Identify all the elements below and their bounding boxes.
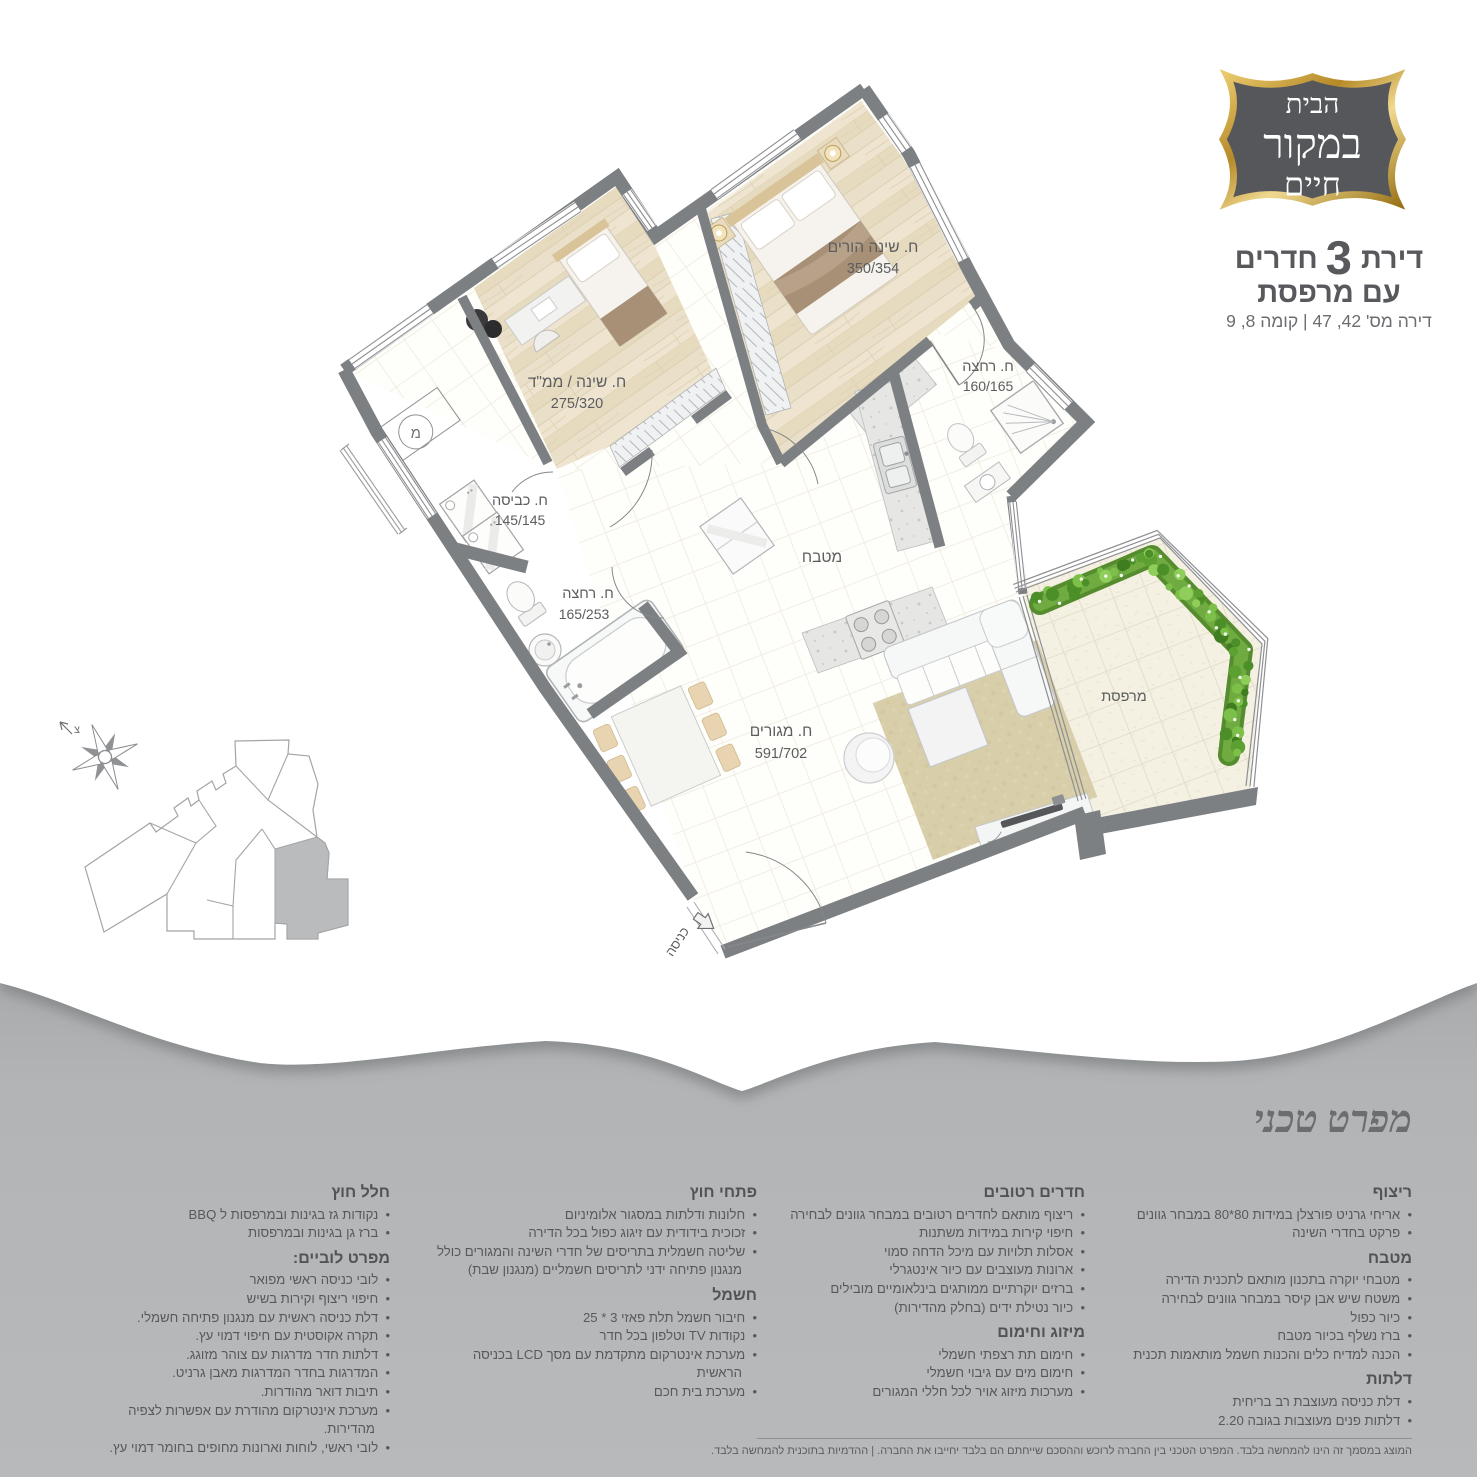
svg-text:ח. רחצה: ח. רחצה bbox=[962, 359, 1014, 375]
svg-text:275/320: 275/320 bbox=[551, 396, 603, 412]
svg-text:מטבח: מטבח bbox=[802, 549, 842, 566]
svg-text:חיים: חיים bbox=[1284, 167, 1341, 203]
svg-text:160/165: 160/165 bbox=[963, 378, 1014, 394]
svg-text:ח. רחצה: ח. רחצה bbox=[562, 586, 614, 602]
svg-text:ח. שינה / ממ"ד: ח. שינה / ממ"ד bbox=[528, 374, 626, 391]
svg-text:ח. שינה הורים: ח. שינה הורים bbox=[828, 239, 919, 256]
svg-text:165/253: 165/253 bbox=[559, 606, 610, 622]
svg-text:מ: מ bbox=[411, 425, 421, 442]
svg-text:צ: צ bbox=[74, 724, 80, 736]
svg-text:הבית: הבית bbox=[1286, 88, 1340, 119]
svg-text:591/702: 591/702 bbox=[755, 746, 807, 762]
svg-text:ח. כביסה: ח. כביסה bbox=[492, 493, 548, 509]
svg-text:ח. מגורים: ח. מגורים bbox=[750, 723, 813, 740]
svg-text:350/354: 350/354 bbox=[847, 261, 899, 277]
svg-text:מרפסת: מרפסת bbox=[1101, 689, 1147, 705]
svg-text:145/145: 145/145 bbox=[495, 512, 546, 528]
svg-text:במקור: במקור bbox=[1263, 121, 1361, 167]
